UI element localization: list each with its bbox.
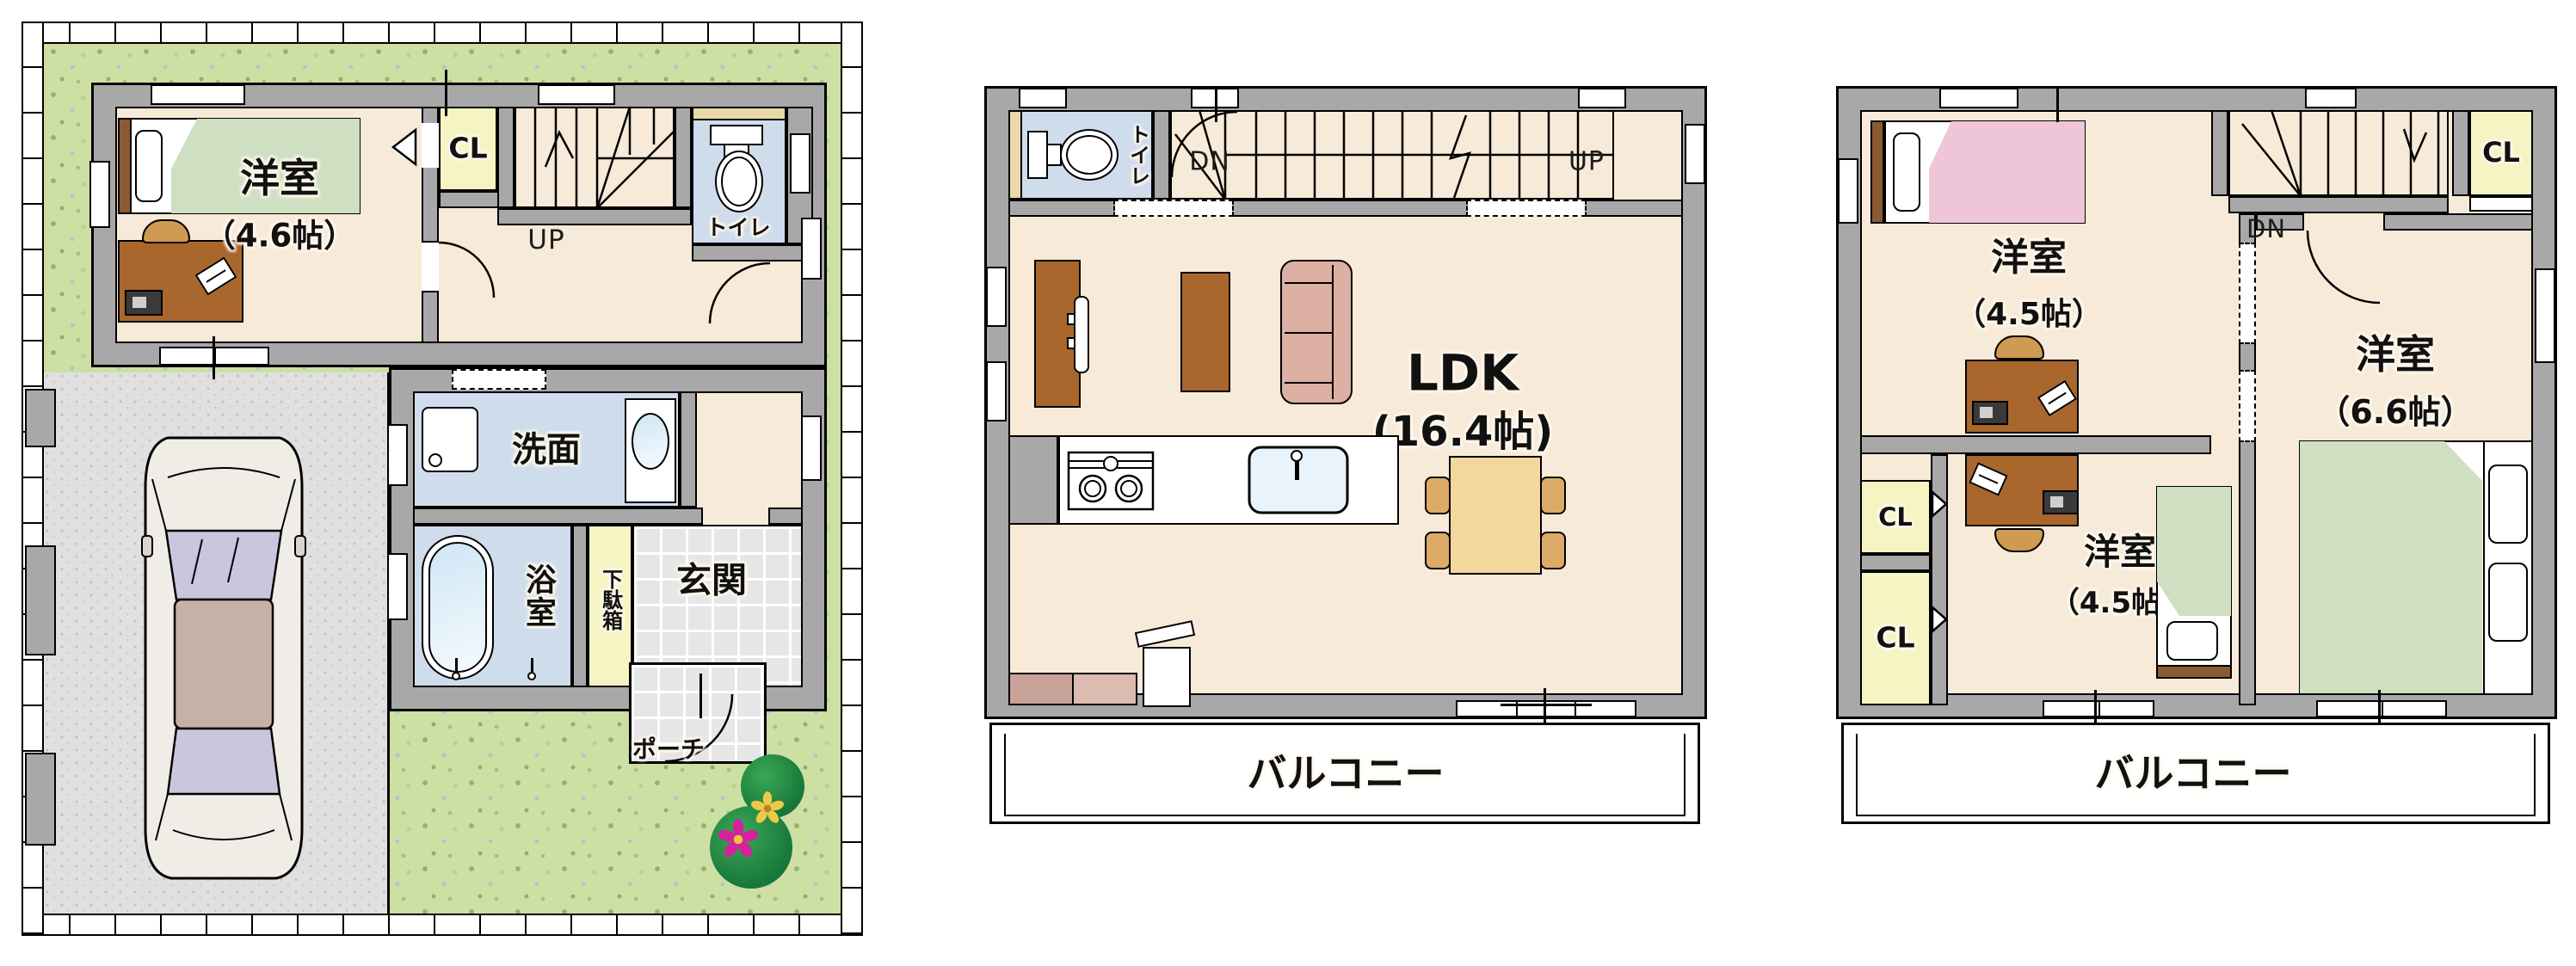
bed-pillow — [135, 130, 163, 202]
balcony-label-3f: バルコニー — [2094, 753, 2291, 794]
faucet-stem — [455, 658, 458, 672]
desk-chair — [1994, 335, 2044, 360]
window — [986, 361, 1007, 421]
wall — [675, 107, 692, 208]
desk-chair — [142, 219, 190, 243]
bed-headboard — [118, 118, 132, 214]
flower-pink-icon — [718, 820, 758, 859]
sliding-door — [1456, 700, 1636, 717]
trash-bin — [1143, 647, 1191, 707]
toilet-counter — [1010, 112, 1022, 198]
wall — [2383, 213, 2533, 231]
bathtub-inner — [428, 542, 487, 673]
bed-footboard — [2156, 665, 2232, 679]
toilet-tank-icon — [710, 125, 763, 145]
wall — [497, 107, 515, 208]
faucet-icon — [527, 672, 536, 680]
stairs-up-label-2f: UP — [1568, 147, 1605, 177]
door-opening — [422, 243, 439, 291]
room-size-bedroom1f: （4.6帖） — [204, 220, 356, 254]
tv-bracket — [1067, 313, 1075, 325]
site-ruler-top — [22, 22, 863, 44]
wall — [2452, 110, 2469, 196]
window — [2535, 268, 2555, 363]
closet-b-label: CL — [1878, 504, 1913, 530]
sliding-door-dashed — [2239, 370, 2256, 442]
wall-tick — [1215, 86, 1217, 122]
wall-tick — [2056, 86, 2059, 122]
wall — [422, 291, 439, 343]
room-size-bedroom-b: （6.6帖） — [2317, 396, 2473, 430]
window — [1578, 88, 1626, 108]
open-passage-dashed — [1466, 200, 1587, 217]
wall-tick — [445, 70, 447, 116]
open-passage-dashed — [1113, 200, 1234, 217]
stairs-up-label-1f: UP — [527, 225, 564, 255]
faucet-stem — [531, 658, 533, 672]
washing-machine-drain — [428, 453, 442, 467]
wall-tick — [213, 336, 215, 379]
dining-table — [1449, 456, 1542, 575]
computer-icon — [2043, 490, 2079, 514]
room-label-bedroom-b: 洋室 — [2356, 334, 2435, 375]
sofa — [1280, 260, 1353, 404]
sliding-door-dashed — [2239, 243, 2256, 344]
entrance-label: 玄関 — [676, 562, 747, 599]
fence-block — [25, 389, 56, 447]
bed-pillow — [2488, 563, 2528, 642]
room-label-bedroom-c: 洋室 — [2084, 533, 2156, 571]
wall — [1860, 435, 2211, 454]
wall — [2211, 110, 2228, 196]
window — [387, 424, 408, 486]
kitchen-fixtures-icon — [1058, 435, 1399, 525]
toilet-label-2f: トイレ — [1126, 124, 1148, 186]
sliding-door — [2043, 700, 2154, 717]
porch-label: ポーチ — [632, 736, 705, 761]
window — [801, 415, 822, 481]
window — [986, 267, 1007, 327]
window — [89, 161, 110, 228]
third-floor-plan: DN CL 洋室 （4.5帖） CL CL 洋室 （4.5帖） — [1836, 86, 2557, 827]
wall-tick — [699, 674, 702, 718]
car-icon — [142, 426, 305, 890]
bathroom-label: 浴室 — [521, 563, 554, 629]
bed-headboard — [1870, 120, 1884, 224]
wall — [680, 391, 697, 508]
bed-blanket — [2157, 487, 2231, 616]
window — [387, 553, 408, 620]
window — [538, 84, 615, 105]
staircase-treads-icon — [2228, 110, 2449, 196]
washroom-label: 洗面 — [512, 432, 581, 468]
wall — [497, 208, 692, 225]
toilet-bowl-icon — [715, 151, 763, 212]
sliding-door-dashed — [452, 369, 546, 390]
toilet-label-1f: トイレ — [706, 217, 770, 239]
fence-block — [25, 753, 56, 846]
door-arc — [710, 263, 770, 323]
window — [1838, 158, 1858, 224]
toilet-bowl-icon — [1060, 129, 1119, 181]
door-arc — [2308, 231, 2380, 303]
room-label-bedroom-a: 洋室 — [1991, 238, 2067, 278]
closet-shelf — [2469, 196, 2533, 212]
coffee-table — [1180, 272, 1230, 392]
stairs-down-label-2f: DN — [1189, 147, 1230, 177]
bed-blanket — [1929, 121, 2085, 223]
faucet-icon — [452, 672, 460, 680]
bed-pillow — [2166, 621, 2218, 661]
toilet-tank-icon — [1027, 131, 1048, 179]
closet-a-label: CL — [2482, 138, 2520, 168]
kitchen-cabinet — [1008, 673, 1137, 705]
room-label-bedroom1f: 洋室 — [240, 157, 319, 199]
tv-bracket — [1067, 337, 1075, 349]
computer-icon — [1972, 401, 2008, 425]
kitchen-wall-stub — [1008, 435, 1058, 525]
wall-tick — [1501, 704, 1592, 706]
wall — [692, 244, 813, 261]
dining-chair — [1540, 532, 1566, 569]
closet-1f-label: CL — [448, 134, 487, 164]
closet-door-arrow-icon — [1931, 490, 1948, 518]
window — [1939, 88, 2018, 108]
sliding-door — [2316, 700, 2447, 717]
fence-block — [25, 545, 56, 655]
door-arc — [439, 243, 494, 298]
vanity-basin-icon — [632, 413, 669, 470]
site-ruler-bottom — [22, 914, 863, 936]
wall — [1153, 110, 1170, 200]
bed-pillow — [1893, 132, 1920, 212]
flower-yellow-icon — [751, 792, 784, 825]
site-ruler-right — [841, 22, 863, 936]
wall — [2228, 196, 2449, 213]
window — [1019, 88, 1067, 108]
staircase-treads-icon — [515, 107, 675, 208]
room-size-bedroom-a: （4.5帖） — [1955, 298, 2103, 331]
window — [151, 84, 245, 105]
dining-chair — [1540, 477, 1566, 514]
dining-chair — [1425, 532, 1451, 569]
window — [2305, 88, 2357, 108]
first-floor-plan: 洋室 （4.6帖） CL UP トイレ — [22, 22, 865, 938]
floor-plan-sheet: 洋室 （4.6帖） CL UP トイレ — [0, 0, 2576, 966]
stairs-down-label-3f: DN — [2246, 214, 2286, 243]
closet-door-arrow-icon — [391, 128, 416, 166]
bed-blanket — [2300, 441, 2482, 693]
closet-door-opening — [422, 123, 439, 168]
toilet-counter — [693, 108, 785, 120]
wall — [572, 525, 588, 687]
shoe-cabinet-label: 下駄箱 — [599, 569, 620, 631]
balcony-label-2f: バルコニー — [1247, 753, 1444, 794]
ldk-size: (16.4帖) — [1372, 410, 1553, 453]
bed-pillow — [2488, 465, 2528, 544]
closet-c-label: CL — [1876, 624, 1914, 654]
hall-opening — [701, 508, 770, 525]
tv-icon — [1074, 296, 1089, 373]
wall — [1860, 554, 1931, 571]
window — [1685, 124, 1705, 184]
dining-chair — [1425, 477, 1451, 514]
computer-icon — [125, 290, 163, 316]
second-floor-plan: トイレ DN UP LDK (16.4帖) — [984, 86, 1707, 827]
window — [790, 133, 810, 194]
ldk-label: LDK — [1407, 348, 1519, 400]
window — [801, 218, 822, 280]
closet-door-arrow-icon — [1931, 606, 1948, 633]
